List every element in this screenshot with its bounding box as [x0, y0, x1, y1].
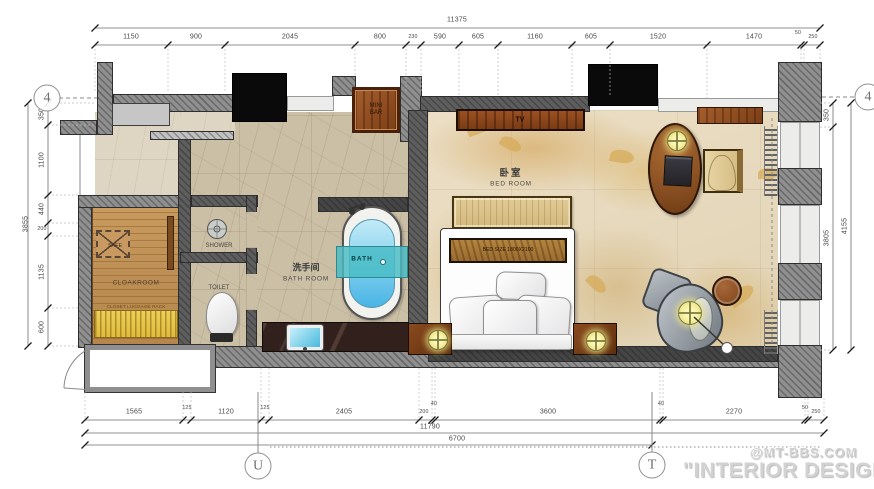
- dim-left-seg: 1135: [39, 264, 46, 280]
- dim-top-seg: 590: [434, 34, 446, 41]
- dim-left-seg: 600: [39, 321, 46, 333]
- desk-lamp: [667, 131, 687, 151]
- entry-hall-floor-strip: [180, 112, 235, 133]
- minibar-label: MINI BAR: [363, 103, 389, 117]
- dim-bottom-seg: 40: [431, 401, 437, 406]
- floor-artwork-petal: [585, 272, 609, 296]
- entry-cabinet: [112, 103, 170, 126]
- grid-marker-4-left: 4: [34, 85, 61, 112]
- dim-bottom-6700: 6700: [449, 436, 465, 443]
- entry-door-panel: [85, 345, 215, 392]
- wall-top-left-stub: [60, 120, 97, 135]
- toilet-base: [210, 333, 233, 342]
- dim-bottom-seg: 200: [419, 409, 428, 414]
- dim-left-seg: 440: [39, 203, 46, 215]
- wall-cloakroom-top: [78, 195, 180, 208]
- bath-label: BATH: [351, 256, 373, 263]
- toilet-fixture: [206, 292, 238, 338]
- window-bay: [780, 205, 820, 265]
- watermark-brand: @MT-BBS.COM: [750, 445, 857, 460]
- dim-top-seg: 605: [585, 34, 597, 41]
- console-top-right: [697, 107, 763, 124]
- dim-top-seg: 250: [808, 34, 817, 39]
- dim-right-4155: 4155: [842, 218, 849, 234]
- watermark-caption: "INTERIOR DESIGN: [683, 459, 874, 483]
- dim-top-seg: 1470: [746, 34, 762, 41]
- shower-label: SHOWER: [206, 243, 233, 249]
- dim-bottom-seg: 50: [802, 405, 808, 410]
- bed-size-label: BED SIZE 1800X2100: [483, 247, 534, 252]
- tv-wall-black: [588, 64, 658, 106]
- window-bay: [780, 300, 820, 347]
- grid-marker-u: U: [245, 453, 272, 480]
- dim-top-seg: 605: [472, 34, 484, 41]
- entry-closet-black: [232, 73, 287, 122]
- wall-pier-right-mid2: [778, 263, 822, 300]
- dim-left-total: 3855: [23, 216, 30, 232]
- laptop: [663, 155, 693, 186]
- dim-bottom-seg: 40: [658, 401, 664, 406]
- dim-right-3805: 3805: [824, 230, 831, 246]
- vanity-sink: [287, 325, 323, 350]
- dim-bottom-11790: 11790: [420, 424, 440, 431]
- wall-top-left-column: [97, 62, 113, 135]
- wall-left: [78, 195, 92, 348]
- floor-lamp: [678, 301, 702, 325]
- safe-box: SAFE: [96, 230, 130, 258]
- wall-entry-bath-separator: [178, 133, 191, 348]
- dim-bottom-seg: 125: [182, 405, 191, 410]
- floor-plan-canvas: SAFE CLOAKROOM CLOSET LUGGAGE RACK SHOWE…: [0, 0, 874, 489]
- window-opening-top: [287, 96, 334, 111]
- curtain-coil-upper: [764, 126, 778, 196]
- wall-pier-right-bottom: [778, 345, 822, 398]
- desk-chair-cushion-line: [708, 155, 736, 191]
- cloakroom-label: CLOAKROOM: [113, 280, 160, 287]
- window-bay: [780, 122, 820, 170]
- luggage-rack: [94, 310, 178, 338]
- desk-chair: [703, 149, 743, 193]
- dim-top-seg: 230: [408, 34, 417, 39]
- table-lamp-right: [586, 331, 606, 351]
- sliding-door: [150, 131, 234, 140]
- wall-pier-right-top: [778, 62, 822, 122]
- dim-top-seg: 1160: [527, 34, 543, 41]
- bathroom-label-cn: 洗手间: [292, 261, 319, 274]
- bedroom-label-en: BED ROOM: [490, 181, 532, 188]
- bathroom-label-en: BATH ROOM: [283, 276, 329, 283]
- dim-top-seg: 2045: [282, 34, 298, 41]
- toilet-door-opening: [246, 274, 257, 310]
- dim-top-seg: 50: [795, 30, 801, 35]
- dim-top-seg: 900: [190, 34, 202, 41]
- dim-left-seg: 1100: [39, 152, 46, 168]
- dim-left-seg: 200: [37, 226, 46, 231]
- wc-door-opening: [246, 212, 257, 248]
- dim-bottom-seg: 125: [260, 405, 269, 410]
- toilet-label: TOILET: [209, 285, 230, 291]
- dim-bottom-seg: 250: [811, 409, 820, 414]
- grid-marker-t: T: [639, 452, 666, 479]
- grid-marker-4-right: 4: [855, 84, 874, 111]
- bed-sheet-fold: [444, 334, 572, 350]
- wall-bath-bedroom-partition: [408, 110, 428, 348]
- wall-pier-right-mid1: [778, 168, 822, 205]
- bed-bench: [452, 196, 572, 229]
- tv-label: TV: [516, 117, 525, 124]
- dim-right-350: 350: [824, 109, 831, 121]
- floor-artwork-petal: [609, 148, 635, 165]
- dim-bottom-seg: 1120: [218, 409, 234, 416]
- luggage-rack-label: CLOSET LUGGAGE RACK: [107, 305, 166, 310]
- side-table-round: [712, 276, 742, 306]
- bedroom-label-cn: 卧室: [499, 165, 522, 179]
- dim-top-seg: 1150: [123, 34, 139, 41]
- dim-bottom-seg: 3600: [540, 409, 556, 416]
- cloakroom-rod: [167, 216, 174, 270]
- curtain-coil-lower: [764, 310, 778, 354]
- vanity-counter: [262, 322, 409, 352]
- dim-bottom-seg: 1565: [126, 409, 142, 416]
- dim-top-seg: 800: [374, 34, 386, 41]
- table-lamp-left: [428, 330, 448, 350]
- dim-bottom-seg: 2270: [726, 409, 742, 416]
- dim-top-total: 11375: [447, 17, 467, 24]
- dim-bottom-seg: 2405: [336, 409, 352, 416]
- safe-label: SAFE: [108, 243, 122, 248]
- floor-artwork-petal: [498, 133, 523, 154]
- dim-top-seg: 1520: [650, 34, 666, 41]
